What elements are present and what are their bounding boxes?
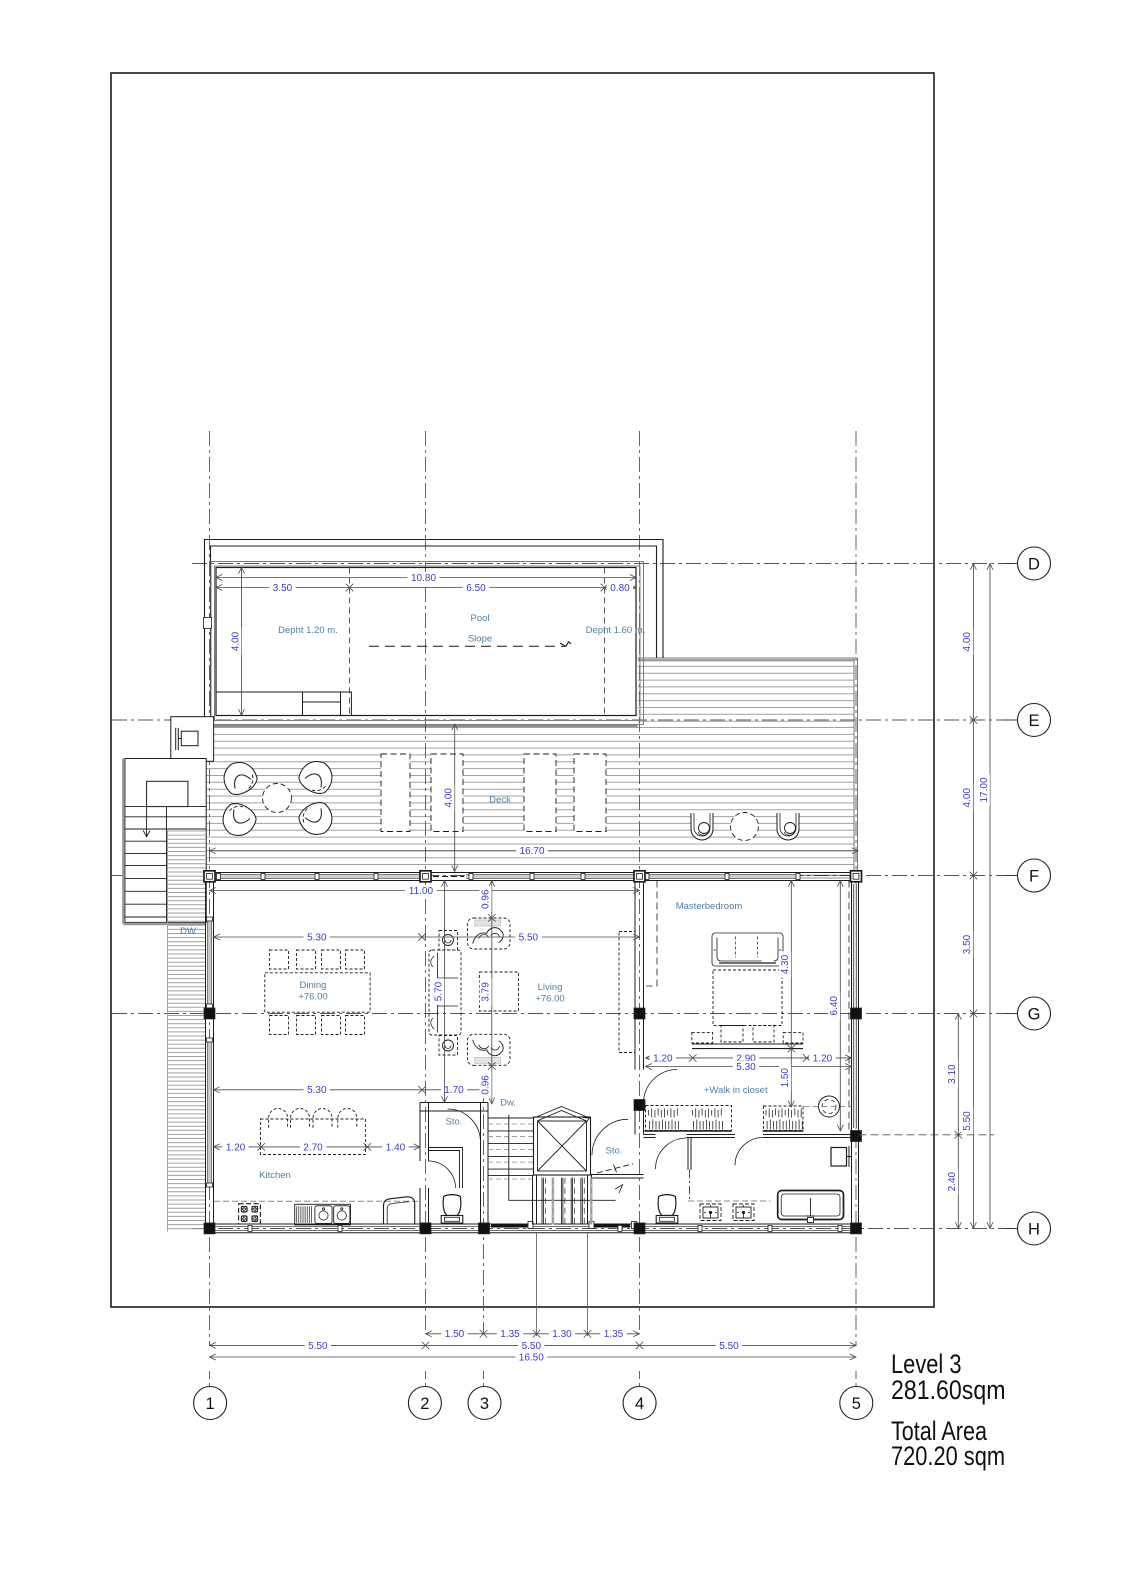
- svg-text:E: E: [1028, 712, 1039, 730]
- svg-text:1.50: 1.50: [445, 1329, 465, 1340]
- svg-text:4: 4: [635, 1395, 644, 1413]
- svg-text:2.70: 2.70: [303, 1142, 323, 1153]
- svg-text:5: 5: [852, 1395, 861, 1413]
- svg-text:4.30: 4.30: [780, 954, 791, 974]
- svg-text:Depht 1.20 m.: Depht 1.20 m.: [278, 625, 338, 636]
- svg-text:1.50: 1.50: [780, 1068, 791, 1088]
- svg-text:5.50: 5.50: [519, 932, 539, 943]
- svg-text:5.50: 5.50: [522, 1341, 542, 1352]
- svg-text:3.10: 3.10: [947, 1064, 958, 1084]
- svg-text:2: 2: [420, 1395, 429, 1413]
- svg-text:3: 3: [480, 1395, 489, 1413]
- svg-text:16.70: 16.70: [519, 846, 544, 857]
- svg-text:5.30: 5.30: [307, 1085, 327, 1096]
- svg-text:1.20: 1.20: [813, 1053, 833, 1064]
- svg-text:4.00: 4.00: [962, 632, 973, 652]
- svg-text:D: D: [1028, 556, 1040, 574]
- svg-text:G: G: [1028, 1006, 1041, 1024]
- svg-text:0.96: 0.96: [481, 1075, 492, 1095]
- svg-text:Deck: Deck: [489, 795, 511, 806]
- svg-text:281.60sqm: 281.60sqm: [891, 1375, 1006, 1405]
- svg-text:16.50: 16.50: [519, 1352, 544, 1363]
- svg-text:Dw.: Dw.: [500, 1098, 516, 1109]
- svg-text:Slope: Slope: [468, 634, 492, 645]
- svg-text:17.00: 17.00: [979, 777, 990, 802]
- svg-text:Depht 1.60 m.: Depht 1.60 m.: [586, 625, 646, 636]
- svg-text:6.40: 6.40: [829, 996, 840, 1016]
- svg-text:2.40: 2.40: [947, 1171, 958, 1191]
- svg-text:1.70: 1.70: [444, 1085, 464, 1096]
- svg-text:4.00: 4.00: [962, 788, 973, 808]
- svg-text:3.50: 3.50: [273, 583, 293, 594]
- svg-text:5.50: 5.50: [308, 1341, 328, 1352]
- svg-text:4.00: 4.00: [444, 788, 455, 808]
- svg-text:+76.00: +76.00: [298, 992, 327, 1003]
- svg-text:5.70: 5.70: [433, 981, 444, 1001]
- svg-text:3.50: 3.50: [962, 934, 973, 954]
- svg-text:1.35: 1.35: [604, 1329, 624, 1340]
- svg-text:0.96: 0.96: [481, 889, 492, 909]
- svg-text:5.30: 5.30: [307, 932, 327, 943]
- svg-text:4.00: 4.00: [230, 631, 241, 651]
- svg-text:H: H: [1028, 1221, 1040, 1239]
- svg-text:F: F: [1029, 868, 1039, 886]
- svg-text:1.30: 1.30: [552, 1329, 572, 1340]
- svg-text:6.50: 6.50: [466, 583, 486, 594]
- svg-text:1.40: 1.40: [386, 1142, 406, 1153]
- svg-text:Living: Living: [538, 982, 563, 993]
- svg-text:5.30: 5.30: [736, 1062, 756, 1073]
- svg-text:5.50: 5.50: [719, 1341, 739, 1352]
- svg-text:+Walk in closet: +Walk in closet: [704, 1085, 768, 1096]
- svg-text:Sto.: Sto.: [606, 1146, 623, 1157]
- svg-text:Kitchen: Kitchen: [259, 1170, 291, 1181]
- svg-text:10.80: 10.80: [411, 573, 436, 584]
- svg-text:1.35: 1.35: [500, 1329, 520, 1340]
- svg-text:Pool: Pool: [470, 613, 489, 624]
- svg-text:1: 1: [206, 1395, 215, 1413]
- svg-text:+76.00: +76.00: [535, 994, 564, 1005]
- svg-text:1.20: 1.20: [653, 1053, 673, 1064]
- svg-text:11.00: 11.00: [409, 886, 434, 897]
- svg-text:720.20 sqm: 720.20 sqm: [891, 1441, 1005, 1471]
- svg-text:1.20: 1.20: [226, 1142, 246, 1153]
- svg-text:Dining: Dining: [300, 980, 327, 991]
- svg-text:5.50: 5.50: [962, 1111, 973, 1131]
- svg-text:DW: DW: [180, 926, 196, 937]
- svg-text:0.80: 0.80: [610, 583, 630, 594]
- svg-text:Masterbedroom: Masterbedroom: [676, 901, 743, 912]
- svg-text:Sto.: Sto.: [446, 1117, 463, 1128]
- svg-text:3.79: 3.79: [481, 982, 492, 1002]
